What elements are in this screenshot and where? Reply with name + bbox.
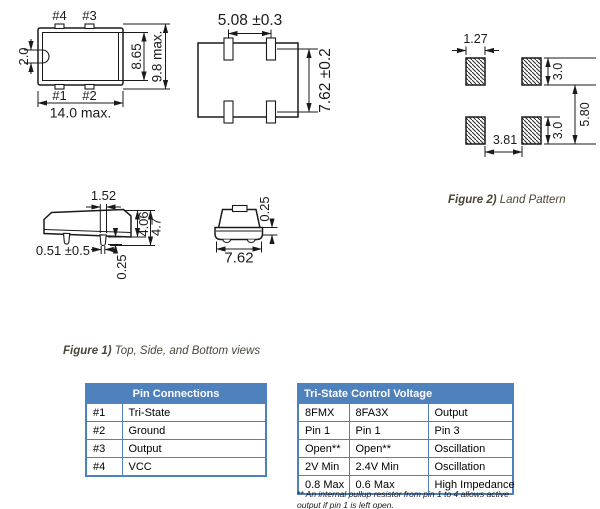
dim-pad-width: 1.27 xyxy=(452,32,499,55)
land-pad-bottom-left xyxy=(466,117,485,144)
top-view-drawing: #4 #3 #1 #2 14.0 max. 2.0 8.65 xyxy=(16,8,170,121)
tristate-footnote: ** An internal pullup resistor from pin … xyxy=(297,489,525,509)
pad-bottom-left xyxy=(224,101,233,123)
dim-horizontal-gap-label: 3.81 xyxy=(493,133,517,147)
table-row: Open** Open** Oscillation xyxy=(298,440,513,458)
cell: Oscillation xyxy=(428,458,513,476)
package-drawings: #4 #3 #1 #2 14.0 max. 2.0 8.65 xyxy=(0,0,600,345)
pin-number-cell: #2 xyxy=(86,422,122,440)
package-outline xyxy=(38,28,123,85)
table-row: #1 Tri-State xyxy=(86,404,266,422)
figure1-caption-label: Figure 1) xyxy=(63,345,112,357)
package-body xyxy=(219,210,261,229)
table-row: #2 Ground xyxy=(86,422,266,440)
table-row: #3 Output xyxy=(86,440,266,458)
cell: Pin 1 xyxy=(298,422,349,440)
pin-function-cell: Ground xyxy=(122,422,266,440)
cell: 8FA3X xyxy=(349,404,428,422)
cell: Pin 1 xyxy=(349,422,428,440)
tristate-control-table: Tri-State Control Voltage 8FMX 8FA3X Out… xyxy=(297,383,514,495)
lead-foot-left xyxy=(223,240,231,243)
dim-row-pitch-label: 7.62 ±0.2 xyxy=(317,48,334,113)
dim-pad-height-top-label: 3.0 xyxy=(551,63,565,80)
dim-notch-label: 2.0 xyxy=(16,47,31,65)
cell: Output xyxy=(428,404,513,422)
dim-end-width-label: 7.62 xyxy=(224,250,253,267)
table-row: 8FMX 8FA3X Output xyxy=(298,404,513,422)
dim-pad-width-label: 1.27 xyxy=(463,32,487,46)
table-row: Pin 1 Pin 1 Pin 3 xyxy=(298,422,513,440)
land-pad-bottom-right xyxy=(522,117,541,144)
lead-right xyxy=(100,235,106,246)
dim-width: 14.0 max. xyxy=(38,91,123,121)
package-base xyxy=(215,228,263,240)
cell: 2V Min xyxy=(298,458,349,476)
pin-connections-table: Pin Connections #1 Tri-State #2 Ground #… xyxy=(85,383,267,477)
land-pattern-drawing: 1.27 3.0 3.0 5.80 3.81 xyxy=(452,32,596,157)
table-header-row: Tri-State Control Voltage xyxy=(298,384,513,404)
cell: 8FMX xyxy=(298,404,349,422)
land-pad-top-left xyxy=(466,58,485,85)
pin-number-cell: #4 xyxy=(86,458,122,477)
lead-foot-right xyxy=(247,240,255,243)
dim-pad-height-bottom-label: 3.0 xyxy=(551,122,565,139)
figure1-caption: Figure 1) Top, Side, and Bottom views xyxy=(63,345,260,357)
pad-bottom-right xyxy=(267,101,276,123)
pin1-label: #1 xyxy=(52,88,66,103)
bottom-view-drawing: 5.08 ±0.3 7.62 ±0.2 xyxy=(198,12,334,123)
pad-top-left xyxy=(224,38,233,60)
dim-horizontal-gap: 3.81 xyxy=(485,133,522,157)
dim-width-label: 14.0 max. xyxy=(50,105,111,121)
pin-function-cell: Output xyxy=(122,440,266,458)
pin-connections-table-title: Pin Connections xyxy=(86,384,266,404)
dim-lip-label: 0.25 xyxy=(257,196,272,221)
pin4-label: #4 xyxy=(52,8,66,23)
dim-pad-pitch-label: 5.08 ±0.3 xyxy=(218,12,283,29)
datasheet-page: #4 #3 #1 #2 14.0 max. 2.0 8.65 xyxy=(0,0,600,509)
dim-vertical-pitch-label: 5.80 xyxy=(578,102,592,126)
table-row: 2V Min 2.4V Min Oscillation xyxy=(298,458,513,476)
table-header-row: Pin Connections xyxy=(86,384,266,404)
package-outline xyxy=(198,43,298,117)
figure2-caption-text: Land Pattern xyxy=(497,194,566,206)
side-view-drawing: 1.52 4.06 4.7 0.51 ±0.5 xyxy=(36,188,164,280)
pad-top-left xyxy=(55,24,64,29)
dim-outer-height-label: 9.8 max. xyxy=(150,31,165,83)
cell: 2.4V Min xyxy=(349,458,428,476)
dim-pad-height-bottom: 3.0 xyxy=(548,117,565,144)
dim-end-width: 7.62 xyxy=(217,242,262,267)
pin2-label: #2 xyxy=(82,88,96,103)
figure2-caption: Figure 2) Land Pattern xyxy=(448,194,566,206)
cell: Pin 3 xyxy=(428,422,513,440)
pad-top-right xyxy=(267,38,276,60)
dim-vertical-pitch: 5.80 xyxy=(575,85,592,144)
dim-lead-width-body-label: 1.52 xyxy=(91,188,116,203)
pin-number-cell: #1 xyxy=(86,404,122,422)
cell: Open** xyxy=(349,440,428,458)
package-body xyxy=(44,210,131,238)
figure1-caption-text: Top, Side, and Bottom views xyxy=(112,345,261,357)
cell: Open** xyxy=(298,440,349,458)
dim-total-height-label: 4.7 xyxy=(149,218,164,236)
dim-pad-pitch: 5.08 ±0.3 xyxy=(218,12,283,38)
tristate-table-title: Tri-State Control Voltage xyxy=(298,384,513,404)
dim-pad-height-top: 3.0 xyxy=(548,58,565,85)
dim-standoff-label: 0.25 xyxy=(114,254,129,279)
dim-inner-height-label: 8.65 xyxy=(129,43,144,69)
dim-lead-width-tip-label: 0.51 ±0.5 xyxy=(36,243,90,258)
table-row: #4 VCC xyxy=(86,458,266,477)
figure2-caption-label: Figure 2) xyxy=(448,194,497,206)
pin3-label: #3 xyxy=(82,8,96,23)
pin-function-cell: Tri-State xyxy=(122,404,266,422)
pin-function-cell: VCC xyxy=(122,458,266,477)
pad-top-right xyxy=(85,24,94,29)
land-pad-top-right xyxy=(522,58,541,85)
end-view-drawing: 7.62 0.25 xyxy=(215,196,278,266)
cell: Oscillation xyxy=(428,440,513,458)
top-marker xyxy=(233,206,248,212)
pin-number-cell: #3 xyxy=(86,440,122,458)
